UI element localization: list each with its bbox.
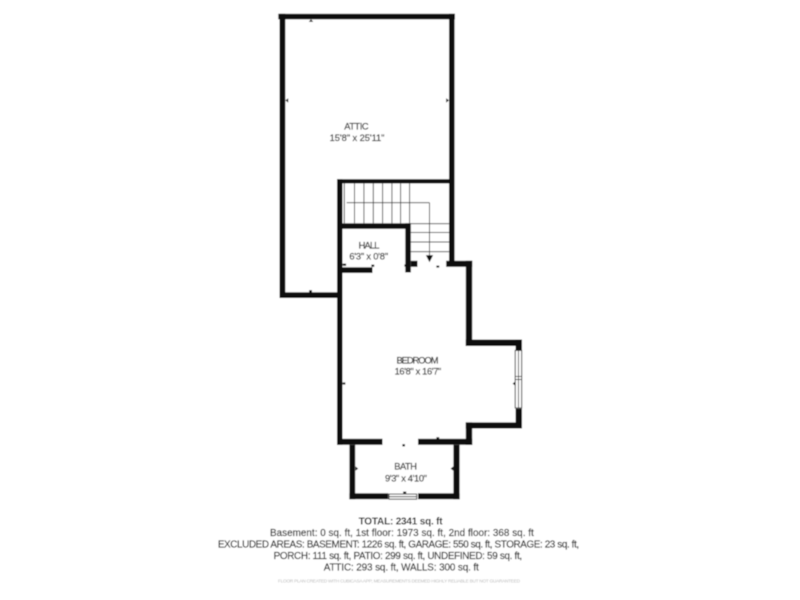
svg-text:9'3" x 4'10": 9'3" x 4'10" [385, 473, 427, 483]
svg-text:EXCLUDED AREAS: BASEMENT: 1226: EXCLUDED AREAS: BASEMENT: 1226 sq. ft, G… [218, 539, 579, 550]
svg-text:16'8" x 16'7": 16'8" x 16'7" [395, 367, 441, 377]
svg-text:6'3" x 0'8": 6'3" x 0'8" [349, 251, 387, 261]
svg-text:BATH: BATH [394, 462, 416, 472]
svg-text:15'8" x 25'11": 15'8" x 25'11" [330, 133, 385, 143]
svg-text:PORCH: 111 sq. ft, PATIO: 299: PORCH: 111 sq. ft, PATIO: 299 sq. ft, UN… [274, 551, 522, 562]
svg-text:FLOOR PLAN CREATED WITH CUBICA: FLOOR PLAN CREATED WITH CUBICASA APP; ME… [278, 579, 521, 584]
svg-text:TOTAL: 2341 sq. ft: TOTAL: 2341 sq. ft [359, 516, 444, 527]
svg-text:Basement: 0 sq. ft, 1st floor:: Basement: 0 sq. ft, 1st floor: 1973 sq. … [270, 528, 534, 539]
svg-text:ATTIC: 293 sq. ft, WALLS: 300: ATTIC: 293 sq. ft, WALLS: 300 sq. ft [324, 562, 479, 573]
svg-text:ATTIC: ATTIC [344, 122, 369, 132]
svg-text:BEDROOM: BEDROOM [396, 356, 437, 366]
svg-text:HALL: HALL [359, 240, 380, 250]
